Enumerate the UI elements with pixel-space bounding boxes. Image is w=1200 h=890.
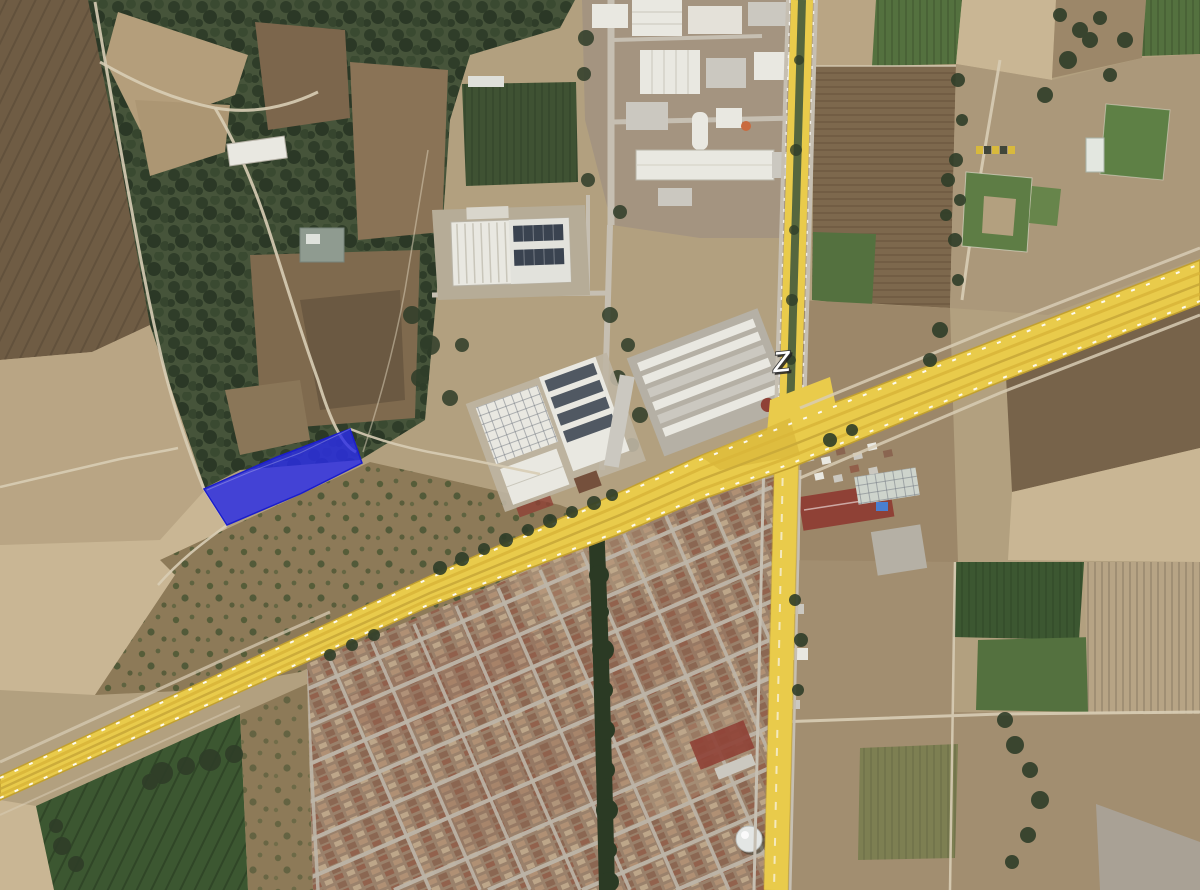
bleachers	[976, 146, 1015, 154]
orchard-plot	[462, 76, 578, 186]
satellite-map-canvas[interactable]: Z Z	[0, 0, 1200, 890]
concrete-slab	[871, 524, 927, 575]
clubhouse-building	[1086, 138, 1104, 172]
pool	[876, 502, 888, 511]
silo-tank	[692, 112, 708, 150]
orange-tank	[741, 121, 751, 131]
small-industrial-building	[300, 228, 344, 262]
solar-panels	[513, 224, 564, 242]
map-viewport[interactable]: Z Z	[0, 0, 1200, 890]
